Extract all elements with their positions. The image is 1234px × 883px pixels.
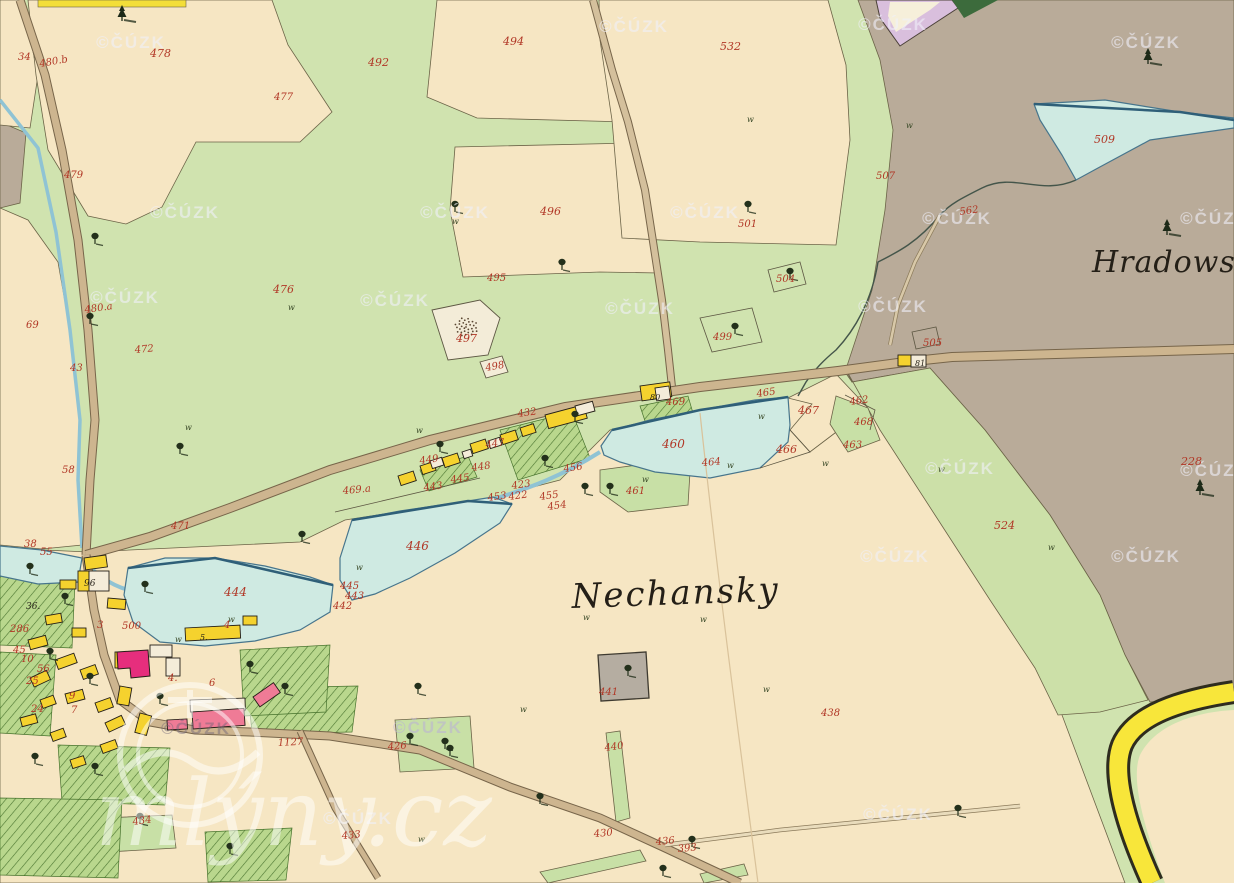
grass-mark-icon: w (175, 635, 182, 644)
parcel-number-497: 497 (455, 332, 477, 345)
parcel-number-34: 34 (18, 52, 31, 63)
stipple-dot (471, 328, 473, 330)
parcel-number-4: 4 (223, 620, 230, 631)
parcel-number-524: 524 (994, 519, 1015, 532)
stipple-dot (467, 318, 469, 320)
parcel-number-509: 509 (1094, 133, 1115, 146)
cuzk-watermark: ©ČÚZK (1111, 33, 1181, 52)
grass-mark-icon: w (700, 615, 707, 624)
parcel-number-436: 436 (654, 835, 676, 848)
placename-hradowske: Hradowske (1091, 245, 1234, 280)
stipple-dot (469, 324, 471, 326)
parcel-number-461: 461 (625, 486, 645, 497)
parcel-number-460: 460 (661, 437, 685, 451)
cuzk-watermark: ©ČÚZK (360, 291, 430, 310)
stipple-dot (475, 327, 477, 329)
parcel-number-58: 58 (62, 465, 75, 476)
parcel-number-495: 495 (486, 273, 506, 284)
parcel-number-479: 479 (63, 170, 84, 181)
parcel-number-501: 501 (738, 219, 757, 230)
house-number-36.: 36. (26, 602, 40, 612)
parcel-number-469: 469 (665, 397, 686, 408)
parcel-number-56: 56 (37, 664, 50, 675)
building (60, 580, 76, 589)
cuzk-watermark: ©ČÚZK (922, 209, 992, 228)
parcel-number-426: 426 (386, 740, 408, 753)
house-number-81: 81 (915, 359, 925, 368)
grass-mark-icon: w (416, 426, 423, 435)
parcel-number-446: 446 (405, 539, 429, 553)
cuzk-watermark: ©ČÚZK (150, 203, 220, 222)
grass-mark-icon: w (763, 685, 770, 694)
stipple-dot (465, 324, 467, 326)
grass-mark-icon: w (906, 121, 913, 130)
grass-mark-icon: w (288, 303, 295, 312)
parcel-number-477: 477 (273, 92, 294, 103)
parcel-number-507: 507 (876, 171, 896, 182)
cuzk-watermark: ©ČÚZK (1180, 209, 1234, 228)
parcel-number-467: 467 (797, 404, 819, 417)
building (117, 686, 132, 706)
stipple-dot (472, 321, 474, 323)
house-number-80: 80 (650, 393, 660, 402)
stipple-dot (467, 329, 469, 331)
parcel-number-9: 9 (69, 691, 76, 702)
cuzk-watermark: ©ČÚZK (605, 299, 675, 318)
cuzk-watermark: ©ČÚZK (858, 15, 928, 34)
building (72, 628, 86, 637)
parcel-number-25: 25 (25, 676, 39, 687)
parcel-number-438: 438 (820, 708, 840, 719)
grass-mark-icon: w (642, 475, 649, 484)
cuzk-watermark: ©ČÚZK (670, 203, 740, 222)
stipple-dot (459, 320, 461, 322)
stipple-dot (465, 326, 467, 328)
map-canvas: wwwwwwwwwwwwwwwwwwww ©ČÚZK©ČÚZK©ČÚZK©ČÚZ… (0, 0, 1234, 883)
grass-mark-icon: w (758, 412, 765, 421)
parcel-number-496: 496 (539, 205, 561, 218)
parcel-number-466: 466 (775, 443, 797, 456)
parcel-number-476: 476 (272, 283, 294, 296)
parcel-number-492: 492 (367, 56, 389, 69)
parcel-number-24: 24 (30, 704, 44, 715)
grass-mark-icon: w (185, 423, 192, 432)
parcel-number-441: 441 (598, 687, 618, 698)
building (107, 598, 126, 610)
building (243, 616, 257, 625)
stipple-dot (463, 327, 465, 329)
cuzk-watermark: ©ČÚZK (420, 203, 490, 222)
sheet-edge-strip (38, 0, 186, 7)
parcel-number-228: 228 (1180, 455, 1202, 468)
parcel-number-500: 500 (122, 621, 142, 632)
parcel-number-430: 430 (592, 827, 614, 840)
site-watermark-text: mlýny.cz (95, 760, 492, 867)
building (898, 355, 911, 366)
parcel-number-504: 504 (776, 274, 795, 285)
grass-mark-icon: w (520, 705, 527, 714)
grass-mark-icon: w (822, 459, 829, 468)
grass-mark-icon: w (747, 115, 754, 124)
parcel-number-4.: 4. (167, 673, 178, 684)
placename-nechansky: Nechansky (570, 570, 781, 617)
building (84, 555, 107, 570)
parcel-number-55: 55 (40, 547, 53, 558)
cuzk-watermark: ©ČÚZK (858, 297, 928, 316)
parcel-number-393: 393 (677, 842, 697, 855)
house-number-5.: 5. (200, 633, 208, 642)
parcel-number-505: 505 (923, 338, 942, 349)
stipple-dot (461, 317, 463, 319)
stipple-dot (455, 324, 457, 326)
house-number-96: 96 (84, 579, 96, 589)
parcel-number-286: 286 (9, 624, 30, 635)
stipple-dot (458, 323, 460, 325)
parcel-number-7: 7 (71, 705, 78, 716)
parcel-number-471: 471 (170, 521, 190, 532)
parcel-number-433: 433 (340, 829, 361, 842)
parcel-number-472: 472 (133, 343, 154, 356)
parcel-number-468: 468 (853, 417, 873, 428)
parcel-number-10: 10 (21, 654, 34, 665)
cadastral-map: wwwwwwwwwwwwwwwwwwww ©ČÚZK©ČÚZK©ČÚZK©ČÚZ… (0, 0, 1234, 883)
cuzk-watermark: ©ČÚZK (860, 547, 930, 566)
cuzk-watermark: ©ČÚZK (925, 459, 995, 478)
parcel-number-1127: 1127 (278, 737, 305, 749)
cuzk-watermark: ©ČÚZK (393, 718, 463, 737)
stipple-dot (464, 319, 466, 321)
grass-mark-icon: w (727, 461, 734, 470)
building (185, 625, 241, 641)
cuzk-watermark: ©ČÚZK (863, 805, 933, 824)
parcel-number-499: 499 (712, 332, 733, 343)
cuzk-watermark: ©ČÚZK (1111, 547, 1181, 566)
stipple-dot (473, 325, 475, 327)
parcel-number-69: 69 (26, 320, 39, 331)
building (150, 645, 172, 657)
stipple-dot (468, 321, 470, 323)
grass-mark-icon: w (356, 563, 363, 572)
parcel-number-464: 464 (700, 456, 721, 469)
parcel-number-6: 6 (209, 678, 216, 689)
parcel-number-463: 463 (842, 440, 862, 451)
stipple-dot (456, 327, 458, 329)
stipple-dot (461, 326, 463, 328)
parcel-number-532: 532 (720, 40, 741, 53)
grass-mark-icon: w (1048, 543, 1055, 552)
parcel-number-38: 38 (24, 539, 37, 550)
stipple-dot (475, 322, 477, 324)
stipple-dot (459, 328, 461, 330)
parcel-number-494: 494 (502, 35, 524, 48)
stipple-dot (462, 322, 464, 324)
parcel-number-444: 444 (223, 585, 247, 599)
parcel-number-43: 43 (69, 363, 83, 374)
cuzk-watermark: ©ČÚZK (599, 17, 669, 36)
cuzk-watermark: ©ČÚZK (161, 719, 231, 738)
parcel-number-478: 478 (149, 47, 171, 60)
parcel-number-442: 442 (332, 601, 352, 612)
parcel-number-3: 3 (97, 620, 103, 631)
